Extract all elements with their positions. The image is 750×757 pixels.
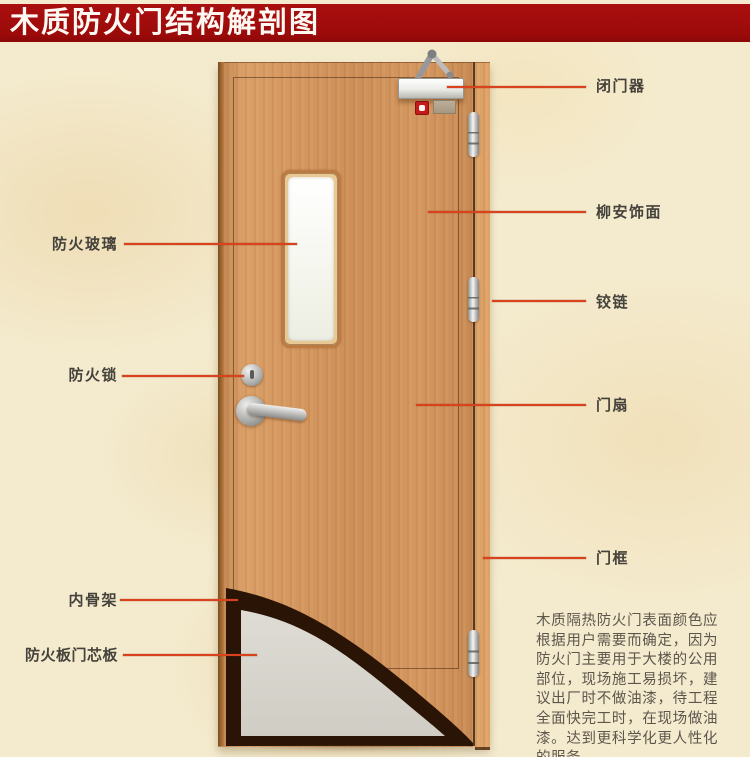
title-banner: 木质防火门结构解剖图: [0, 4, 750, 42]
leader-door-leaf: [416, 404, 586, 406]
leader-fire-glass: [124, 243, 297, 245]
poster: 木质防火门结构解剖图: [0, 0, 750, 757]
door-shadow: [210, 745, 502, 753]
label-core-board: 防火板门芯板: [10, 647, 118, 665]
hinge-bottom: [468, 630, 479, 677]
core-board-shape: [241, 610, 445, 736]
label-hinge: 铰链: [596, 294, 629, 312]
leader-fire-lock: [122, 375, 244, 377]
hinge-middle: [468, 277, 479, 322]
leader-veneer: [428, 211, 586, 213]
label-fire-glass: 防火玻璃: [10, 236, 118, 254]
leader-door-frame: [483, 557, 586, 559]
leader-hinge: [492, 300, 586, 302]
label-veneer: 柳安饰面: [596, 204, 662, 222]
leader-inner-frame: [120, 599, 238, 601]
label-door-frame: 门框: [596, 550, 629, 568]
leader-core-board: [123, 654, 257, 656]
leader-door-closer: [447, 86, 586, 88]
door-closer: [398, 78, 464, 99]
label-door-closer: 闭门器: [596, 78, 646, 96]
label-door-leaf: 门扇: [596, 397, 629, 415]
page-title: 木质防火门结构解剖图: [10, 9, 320, 38]
rating-plaque: [433, 100, 456, 114]
label-fire-lock: 防火锁: [10, 367, 118, 385]
label-inner-frame: 内骨架: [10, 592, 118, 610]
product-description: 木质隔热防火门表面颜色应根据用户需要而确定，因为防火门主要用于大楼的公用部位，现…: [536, 612, 718, 757]
hinge-top: [468, 112, 479, 157]
fire-certificate-badge: [415, 101, 429, 115]
